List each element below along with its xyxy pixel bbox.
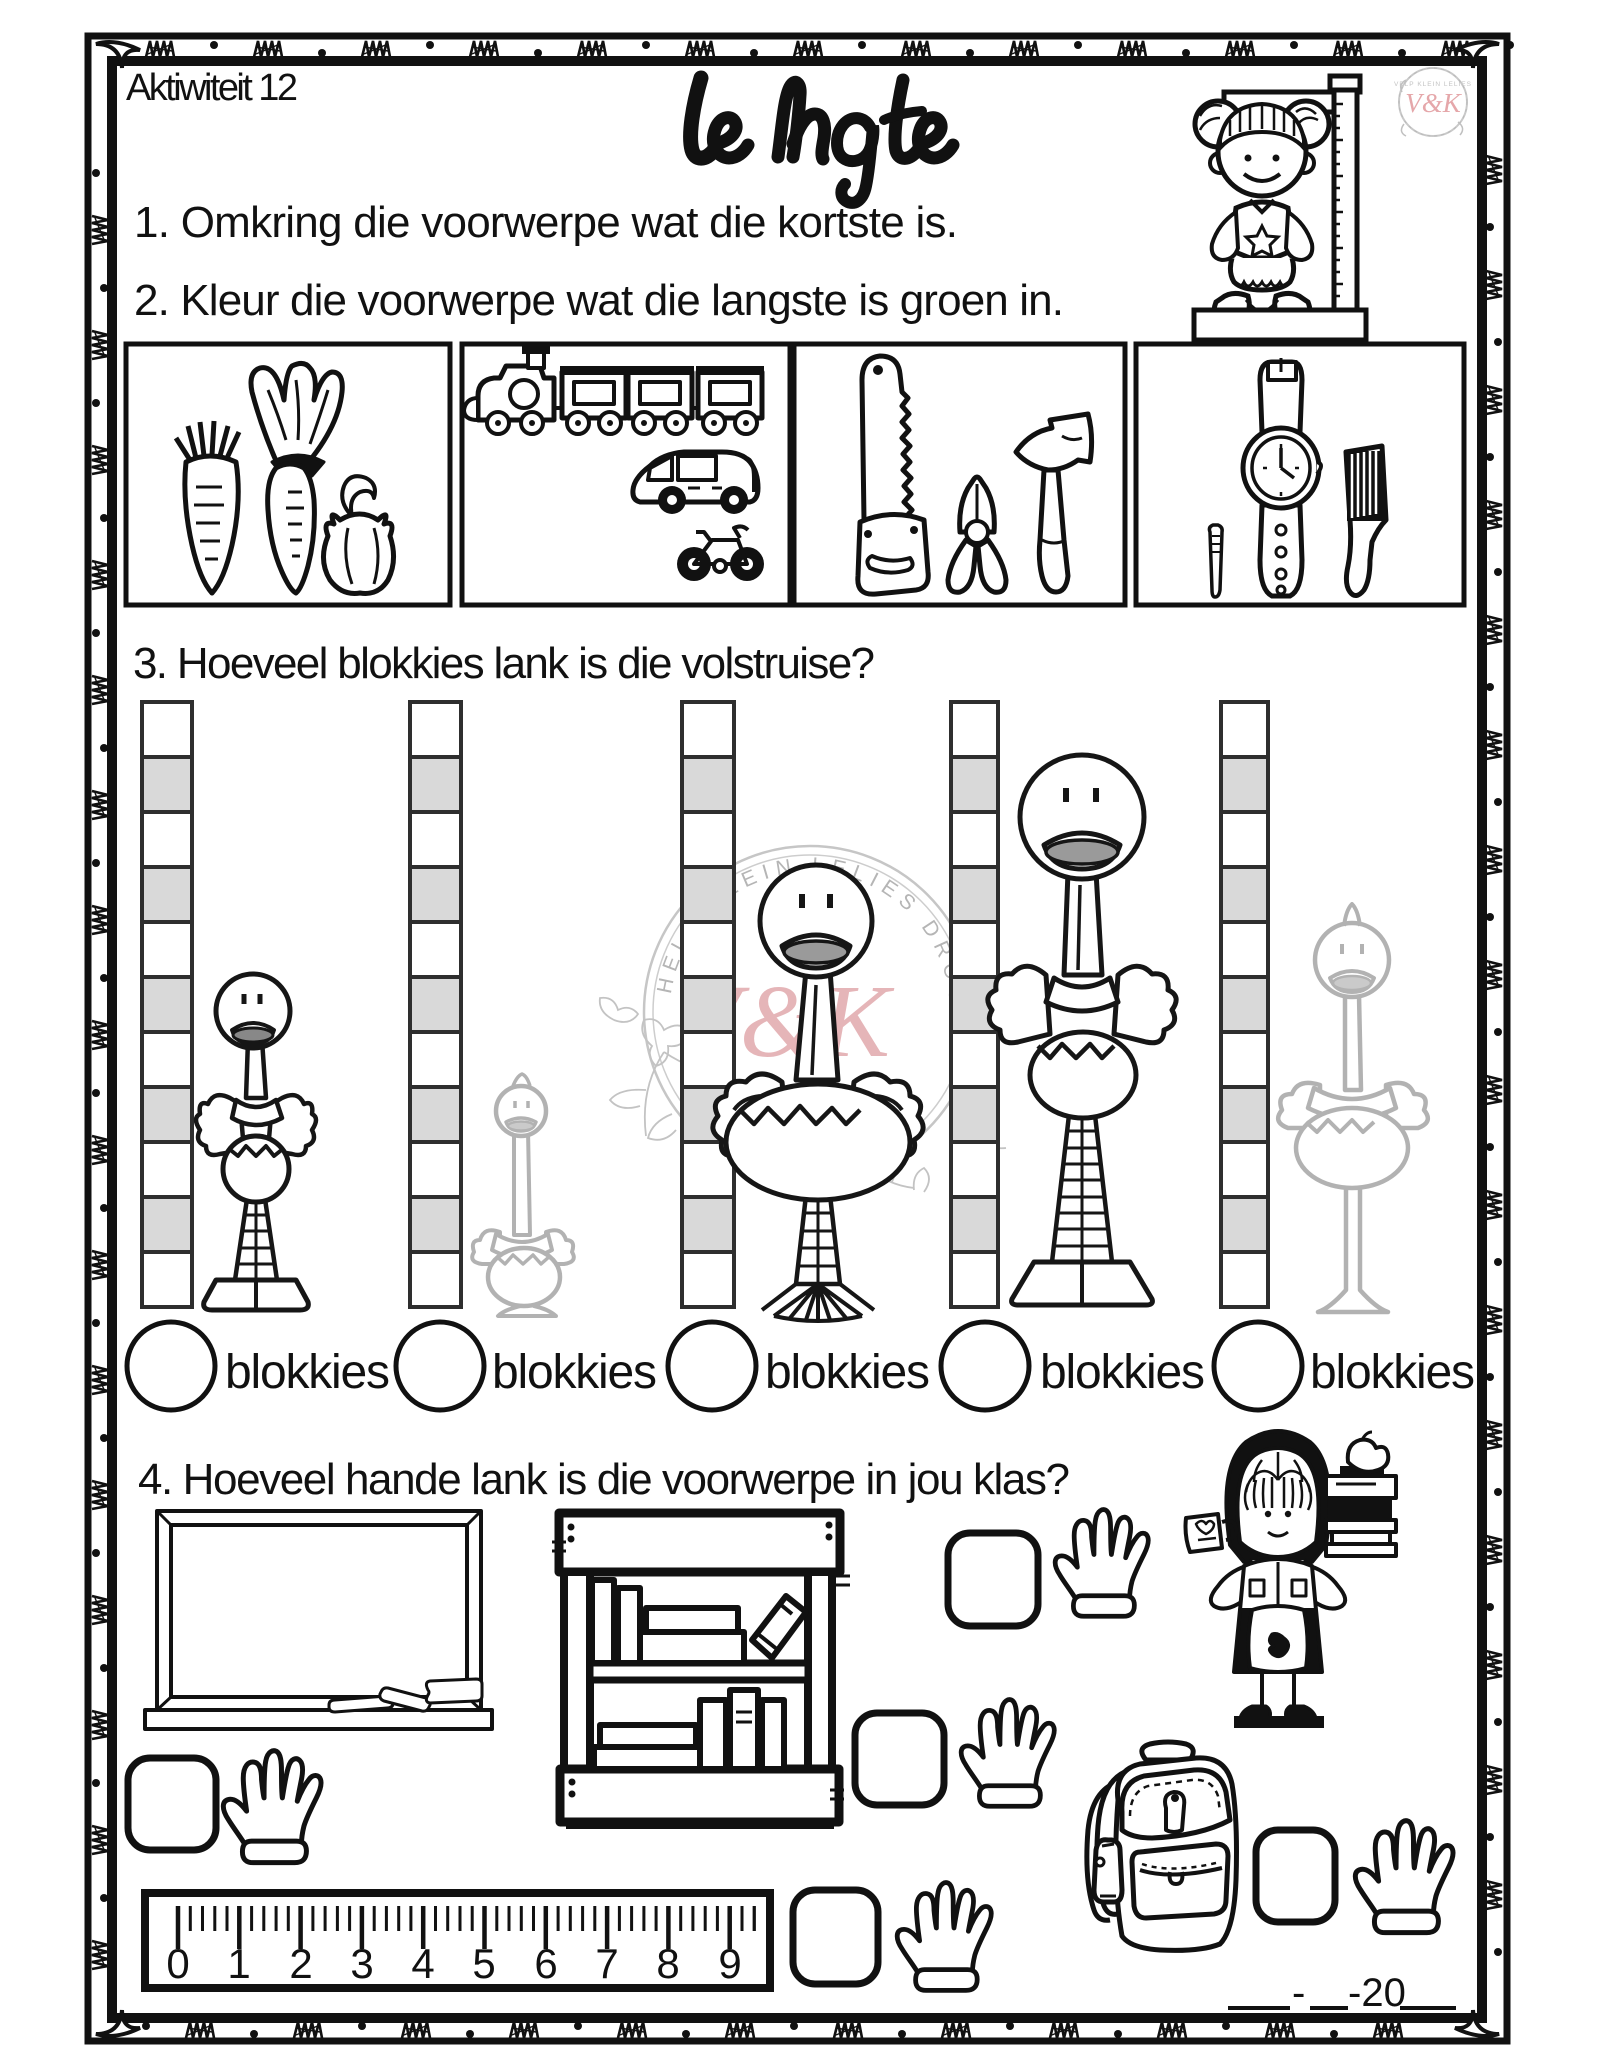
svg-text:5: 5 <box>472 1940 495 1987</box>
svg-text:4. Hoeveel hande lank is die v: 4. Hoeveel hande lank is die voorwerpe i… <box>138 1455 1070 1504</box>
svg-text:1. Omkring die voorwerpe wat d: 1. Omkring die voorwerpe wat die kortste… <box>134 198 958 247</box>
svg-text:VELP KLEIN LELIES: VELP KLEIN LELIES <box>1394 81 1472 88</box>
svg-text:V&K: V&K <box>1405 88 1462 118</box>
svg-text:2. Kleur die voorwerpe wat die: 2. Kleur die voorwerpe wat die langste i… <box>134 276 1064 325</box>
svg-text:0: 0 <box>166 1940 189 1987</box>
svg-text:4: 4 <box>411 1940 434 1987</box>
svg-text:blokkies: blokkies <box>1310 1346 1475 1399</box>
svg-text:9: 9 <box>718 1940 741 1987</box>
svg-text:blokkies: blokkies <box>765 1346 930 1399</box>
svg-text:-20: -20 <box>1348 1971 1406 2015</box>
svg-text:2: 2 <box>289 1940 312 1987</box>
svg-text:3. Hoeveel blokkies lank is di: 3. Hoeveel blokkies lank is die volstrui… <box>133 639 875 688</box>
svg-text:blokkies: blokkies <box>492 1346 657 1399</box>
svg-text:Aktiwiteit 12: Aktiwiteit 12 <box>126 67 298 109</box>
svg-text:blokkies: blokkies <box>1040 1346 1205 1399</box>
svg-text:-: - <box>1292 1971 1305 2015</box>
svg-text:blokkies: blokkies <box>225 1346 390 1399</box>
svg-text:8: 8 <box>656 1940 679 1987</box>
svg-text:6: 6 <box>534 1940 557 1987</box>
svg-text:1: 1 <box>227 1940 250 1987</box>
svg-text:3: 3 <box>350 1940 373 1987</box>
svg-text:7: 7 <box>595 1940 618 1987</box>
